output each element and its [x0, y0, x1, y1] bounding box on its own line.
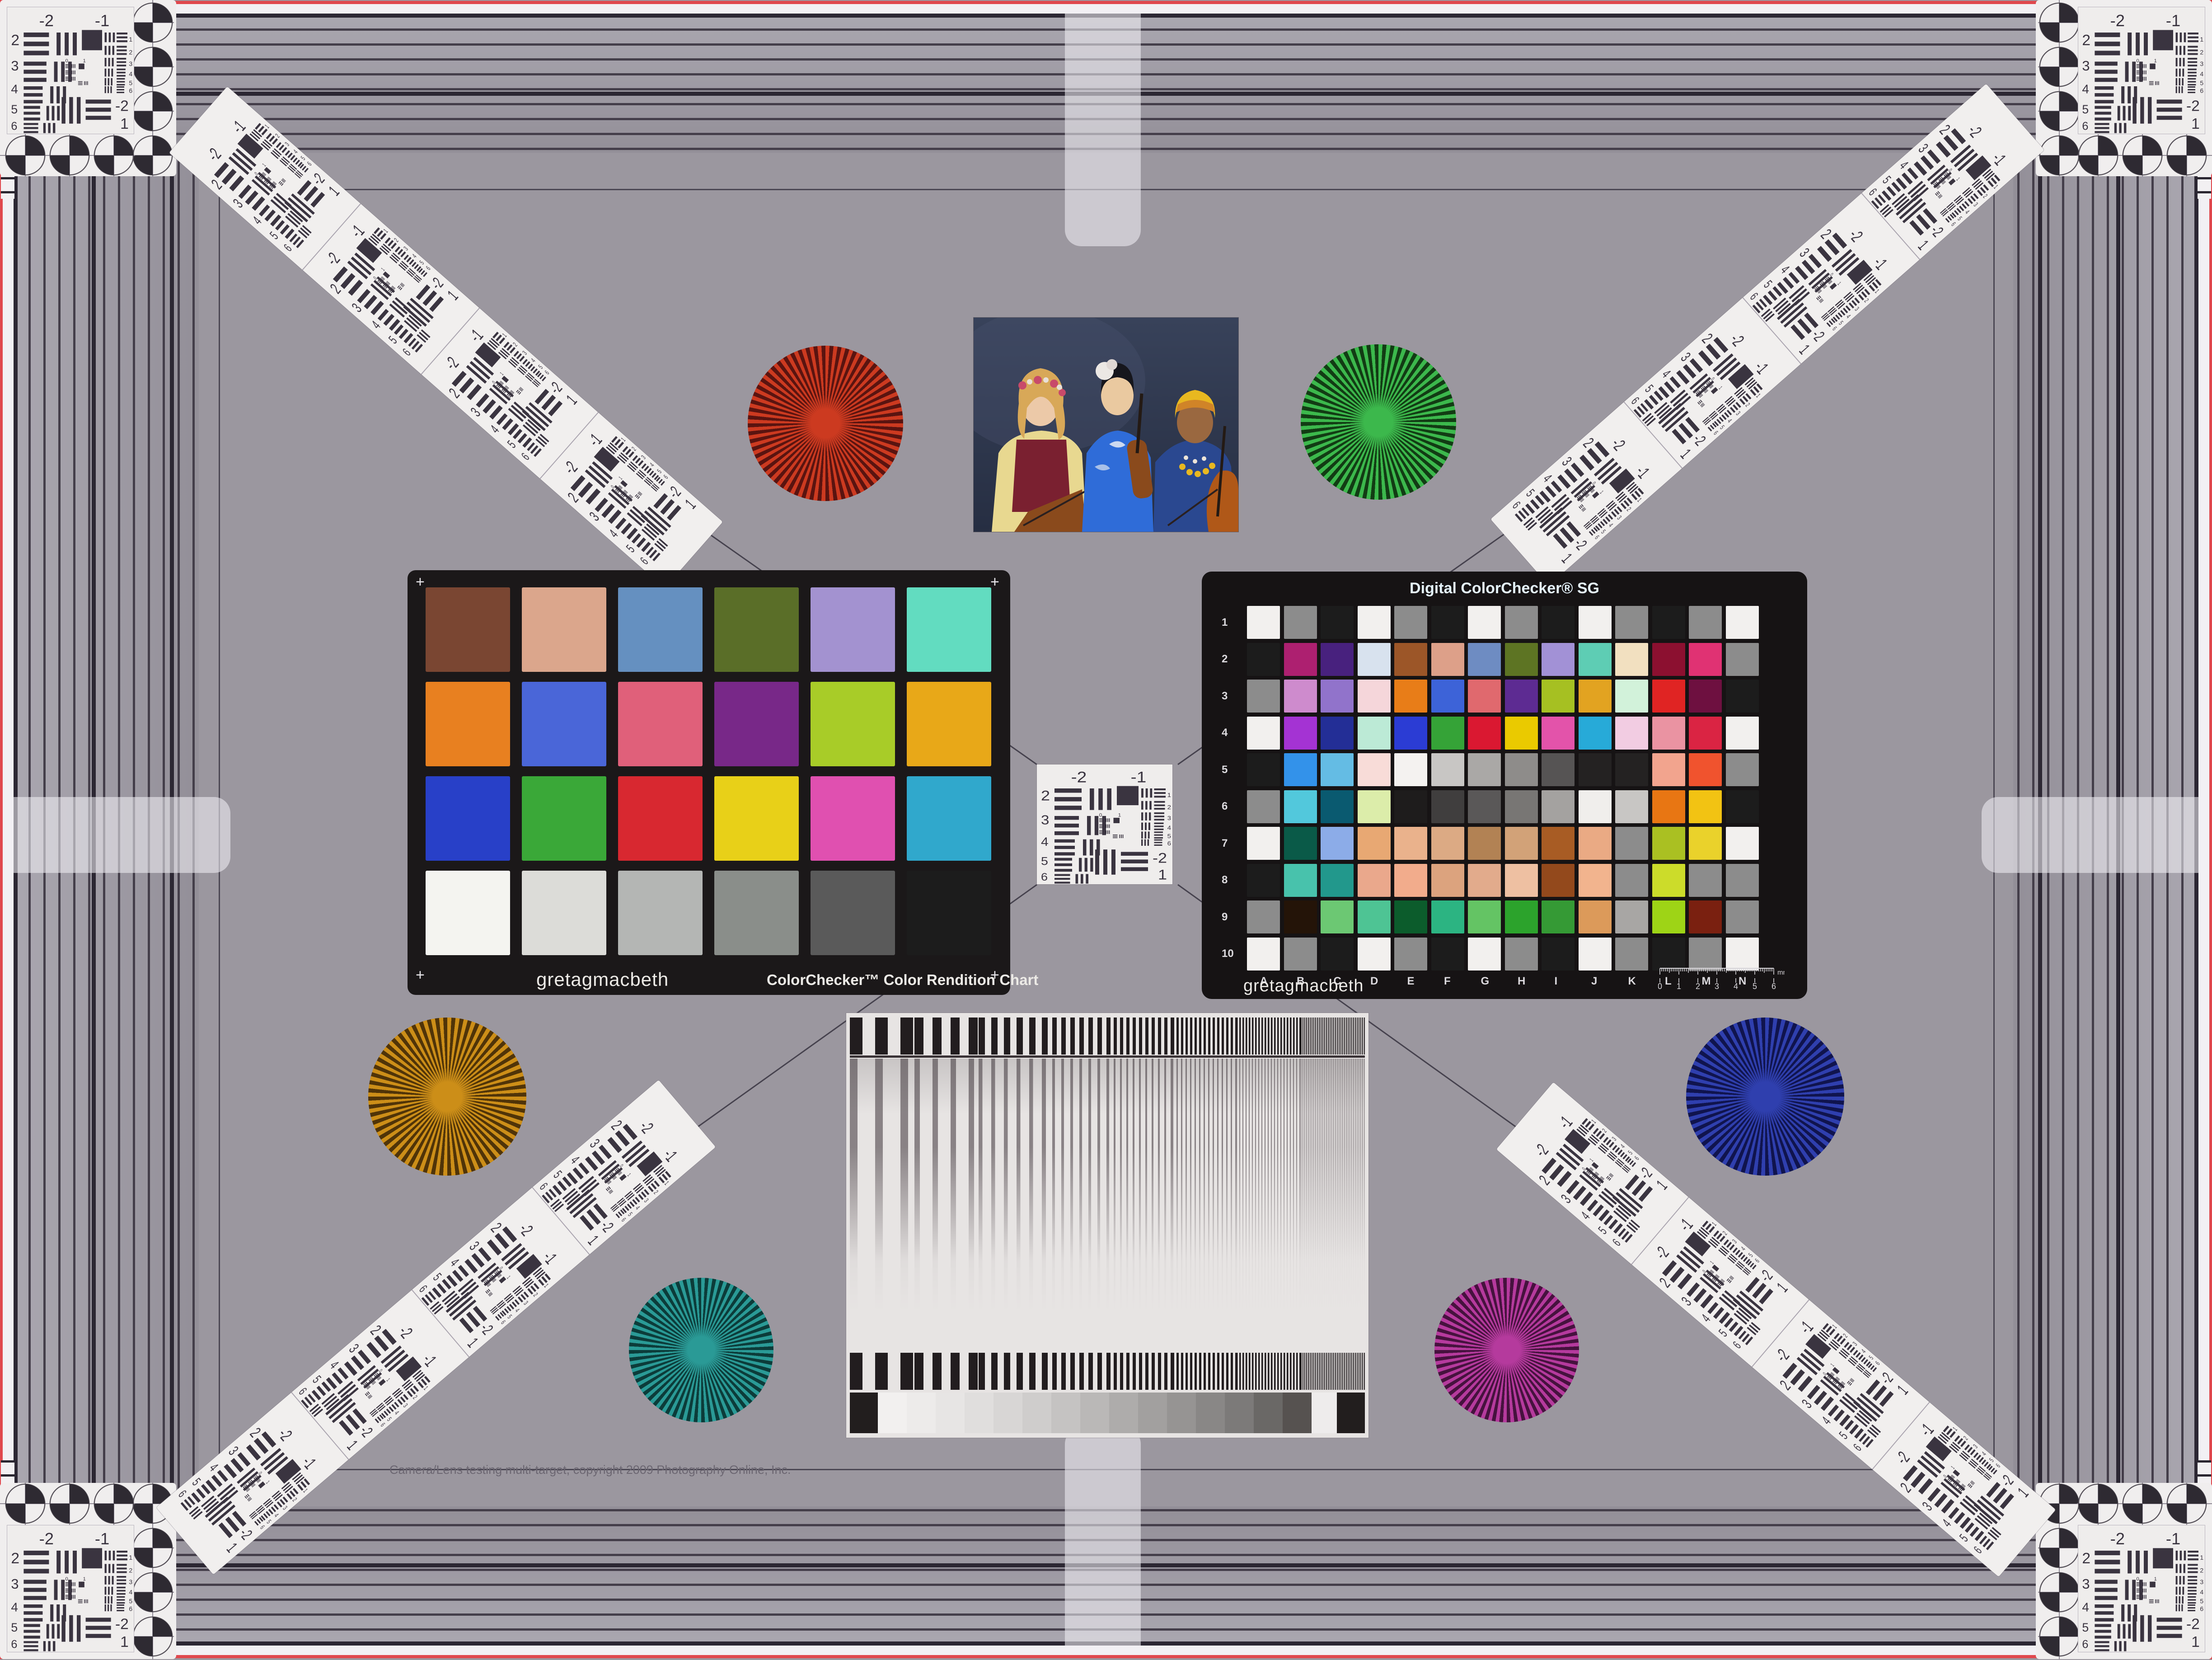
svg-text:5: 5	[2082, 1621, 2089, 1634]
svg-text:-2: -2	[1570, 535, 1590, 553]
sg-patch	[1431, 900, 1464, 933]
wedge-step	[1022, 1393, 1051, 1433]
sg-patch	[1579, 753, 1612, 786]
svg-text:2: 2	[129, 48, 132, 56]
svg-text:4: 4	[129, 70, 132, 77]
sg-patch	[1505, 864, 1538, 897]
sg-patch	[1358, 938, 1391, 971]
svg-text:4: 4	[634, 1204, 642, 1211]
sg-patch	[1431, 753, 1464, 786]
svg-text:3: 3	[642, 1196, 650, 1204]
sg-patch	[1394, 680, 1427, 713]
svg-text:2: 2	[412, 1393, 419, 1401]
svg-text:-2: -2	[427, 274, 447, 293]
svg-text:-2: -2	[2110, 11, 2125, 30]
sg-patch	[1579, 717, 1612, 750]
svg-text:4: 4	[393, 1409, 401, 1416]
siemens-star-teal	[629, 1278, 773, 1422]
svg-text:1: 1	[2191, 1634, 2200, 1651]
sg-row-label: 8	[1222, 874, 1228, 886]
svg-text:-2: -2	[1071, 769, 1087, 786]
sg-patch	[1615, 606, 1648, 639]
sg-patch	[1394, 606, 1427, 639]
colorchecker-sg-card: Digital ColorChecker® SG 12345678910ABCD…	[1202, 572, 1807, 999]
sg-patch	[1431, 680, 1464, 713]
svg-text:1: 1	[1951, 1425, 1959, 1432]
sg-patch	[1284, 900, 1317, 933]
svg-text:-1: -1	[2166, 1529, 2180, 1548]
quadrant-circle-icon	[2165, 1482, 2208, 1525]
svg-text:5: 5	[623, 542, 637, 555]
svg-text:-2: -2	[394, 1322, 416, 1342]
sg-patch	[1505, 606, 1538, 639]
svg-text:1: 1	[1558, 550, 1575, 567]
svg-text:3: 3	[639, 453, 647, 460]
wedge-step	[1225, 1393, 1254, 1433]
svg-text:6: 6	[296, 1385, 309, 1397]
svg-text:1: 1	[499, 371, 505, 376]
sg-patch	[1247, 606, 1280, 639]
svg-text:-2: -2	[1845, 225, 1866, 246]
classic-patch	[426, 682, 510, 766]
svg-text:2: 2	[1721, 1229, 1729, 1237]
sg-patch	[1284, 717, 1317, 750]
classic-patch	[907, 871, 991, 955]
svg-text:-1: -1	[2166, 11, 2180, 30]
sg-patch	[1431, 827, 1464, 860]
sg-row-label: 9	[1222, 911, 1228, 924]
sg-patch	[1431, 864, 1464, 897]
svg-text:5: 5	[1753, 982, 1757, 991]
classic-patch	[714, 587, 799, 672]
sg-patch	[1468, 827, 1501, 860]
svg-text:3: 3	[586, 509, 603, 524]
svg-text:5: 5	[1957, 1532, 1971, 1545]
svg-text:1: 1	[619, 436, 627, 443]
sg-patch	[1652, 643, 1685, 676]
quadrant-circle-icon	[4, 134, 47, 177]
svg-text:5: 5	[189, 1475, 203, 1488]
sg-patch	[1652, 900, 1685, 933]
sg-patch	[1284, 938, 1317, 971]
sg-patch	[1689, 790, 1722, 823]
svg-text:6: 6	[305, 160, 313, 167]
svg-text:3: 3	[1167, 815, 1171, 821]
sg-patch	[1652, 790, 1685, 823]
quadrant-circle-icon	[2077, 134, 2119, 177]
svg-text:3: 3	[1734, 409, 1742, 417]
sg-patch	[1542, 864, 1575, 897]
sg-patch	[1579, 900, 1612, 933]
classic-title: ColorChecker™ Color Rendition Chart	[767, 971, 1038, 989]
svg-text:6: 6	[1593, 533, 1601, 540]
sg-patch	[1542, 717, 1575, 750]
corner-registration-block-bottom-right: -2-12345612345601-21	[2036, 1483, 2212, 1659]
svg-text:4: 4	[11, 1600, 18, 1614]
sg-patch	[1284, 643, 1317, 676]
svg-text:5: 5	[309, 1373, 323, 1386]
sg-patch	[1247, 864, 1280, 897]
svg-text:4: 4	[11, 82, 18, 96]
sg-patch	[1468, 643, 1501, 676]
colorchecker-classic-card: + + + + gretagmacbeth ColorChecker™ Colo…	[408, 570, 1010, 995]
svg-text:2: 2	[2082, 1550, 2090, 1567]
sg-patch	[1579, 606, 1612, 639]
sg-patch	[1358, 827, 1391, 860]
svg-text:5: 5	[1987, 1456, 1995, 1463]
corner-cross-icon: +	[990, 577, 999, 586]
svg-text:0: 0	[65, 58, 68, 64]
sg-column-label: F	[1444, 975, 1451, 988]
svg-text:1: 1	[1830, 1362, 1836, 1368]
wedge-step	[1167, 1393, 1196, 1433]
sg-patch	[1505, 643, 1538, 676]
svg-text:4: 4	[1726, 417, 1734, 424]
sg-patch	[1615, 753, 1648, 786]
wedge-step	[994, 1393, 1022, 1433]
svg-text:3: 3	[468, 404, 484, 419]
svg-text:3: 3	[1972, 201, 1980, 208]
quadrant-circle-icon	[2038, 1615, 2081, 1658]
svg-text:6: 6	[1831, 324, 1838, 332]
svg-text:5: 5	[626, 1210, 634, 1218]
svg-text:6: 6	[1748, 290, 1761, 302]
usaf-resolution-target-corner: -2-12345612345601-21	[7, 1525, 134, 1652]
svg-text:6: 6	[2200, 1605, 2203, 1612]
sg-patch	[1615, 900, 1648, 933]
sg-patch	[1358, 900, 1391, 933]
sg-patch	[1505, 790, 1538, 823]
svg-text:6: 6	[129, 87, 132, 94]
svg-text:-2: -2	[1689, 430, 1709, 449]
svg-text:2: 2	[1167, 804, 1171, 811]
svg-text:6: 6	[1610, 1236, 1623, 1249]
svg-text:6: 6	[1753, 1257, 1761, 1264]
svg-text:6: 6	[1994, 1462, 2002, 1469]
svg-text:4: 4	[1734, 982, 1738, 991]
sg-patch	[1468, 864, 1501, 897]
svg-text:4: 4	[1819, 1414, 1834, 1427]
svg-text:4: 4	[2082, 1600, 2089, 1614]
svg-text:3: 3	[1971, 1443, 1979, 1450]
svg-text:5: 5	[2082, 103, 2089, 116]
svg-text:1: 1	[626, 1172, 632, 1177]
svg-text:5: 5	[2200, 79, 2203, 86]
svg-text:-2: -2	[635, 1116, 657, 1137]
sg-patch	[1394, 753, 1427, 786]
svg-text:3: 3	[1041, 812, 1049, 827]
svg-text:1: 1	[1590, 1118, 1598, 1125]
svg-text:1: 1	[1992, 183, 2000, 190]
svg-text:-2: -2	[1153, 850, 1167, 866]
svg-text:2: 2	[652, 1188, 660, 1196]
sg-patch	[1726, 864, 1759, 897]
svg-text:6: 6	[662, 473, 670, 480]
quadrant-circle-icon	[2038, 1, 2081, 44]
sg-brand: gretagmacbeth	[1243, 976, 1364, 996]
sg-patch	[1468, 938, 1501, 971]
svg-text:1: 1	[120, 1634, 129, 1651]
sg-patch	[1431, 643, 1464, 676]
quadrant-circle-icon	[2121, 134, 2164, 177]
svg-text:4: 4	[648, 461, 656, 468]
svg-text:5: 5	[267, 229, 281, 242]
wedge-step	[1051, 1393, 1080, 1433]
svg-text:-2: -2	[515, 1219, 537, 1239]
svg-text:4: 4	[529, 356, 537, 364]
svg-text:5: 5	[11, 103, 18, 116]
svg-text:5: 5	[1747, 1251, 1754, 1258]
svg-text:1: 1	[1873, 287, 1881, 295]
sg-patch	[1394, 643, 1427, 676]
svg-text:3: 3	[281, 1504, 289, 1511]
svg-text:1: 1	[223, 1539, 240, 1556]
sg-patch	[1542, 680, 1575, 713]
svg-text:-2: -2	[39, 11, 54, 30]
svg-text:1: 1	[584, 1232, 602, 1248]
svg-text:-2: -2	[115, 98, 129, 115]
svg-text:-2: -2	[1726, 329, 1748, 350]
svg-text:6: 6	[1971, 1543, 1984, 1556]
svg-text:0: 0	[1658, 982, 1662, 991]
quadrant-circle-icon	[2038, 46, 2081, 88]
svg-text:4: 4	[369, 318, 383, 332]
svg-text:-2: -2	[1651, 1243, 1673, 1263]
svg-text:6: 6	[2200, 87, 2203, 94]
sg-patch	[1689, 717, 1722, 750]
svg-text:5: 5	[550, 1168, 564, 1181]
svg-text:5: 5	[1642, 382, 1656, 395]
svg-text:2: 2	[1696, 982, 1700, 991]
svg-text:1: 1	[1709, 1260, 1715, 1265]
sg-patch	[1579, 790, 1612, 823]
svg-text:3: 3	[1730, 1238, 1738, 1245]
sg-patch	[1468, 790, 1501, 823]
usaf-resolution-target-center: -2-12345612345601-21	[1037, 764, 1172, 884]
sg-patch	[1431, 938, 1464, 971]
sg-row-label: 1	[1222, 616, 1228, 629]
wedge-step	[907, 1393, 936, 1433]
svg-text:-2: -2	[441, 353, 463, 374]
quadrant-circle-icon	[131, 1, 174, 44]
svg-text:2: 2	[1982, 192, 1989, 199]
svg-text:5: 5	[1761, 278, 1775, 291]
svg-text:1: 1	[2200, 36, 2203, 43]
svg-text:3: 3	[1853, 305, 1861, 312]
corner-registration-block-top-left: -2-12345612345601-21	[0, 0, 176, 176]
svg-text:3: 3	[402, 244, 409, 252]
svg-text:6: 6	[637, 554, 651, 567]
svg-text:-2: -2	[1927, 221, 1947, 240]
svg-text:-2: -2	[546, 378, 566, 397]
sg-patch	[1284, 606, 1317, 639]
registration-tab-right	[1982, 797, 2198, 873]
svg-text:1: 1	[262, 162, 267, 168]
svg-text:4: 4	[410, 252, 418, 259]
frequency-sweep-chart	[846, 1013, 1368, 1438]
quadrant-circle-icon	[4, 1482, 47, 1525]
wedge-step	[1109, 1393, 1138, 1433]
svg-text:1: 1	[1636, 496, 1644, 503]
usaf-resolution-target-corner: -2-12345612345601-21	[7, 7, 134, 134]
quadrant-circle-icon	[2038, 134, 2081, 177]
svg-text:-1: -1	[1631, 461, 1653, 482]
svg-text:5: 5	[537, 363, 544, 370]
svg-text:5: 5	[1716, 1327, 1730, 1340]
quadrant-circle-icon	[131, 1527, 174, 1569]
classic-patch	[714, 776, 799, 861]
sg-column-label: E	[1407, 975, 1415, 988]
quadrant-circle-icon	[2038, 1527, 2081, 1569]
sg-patch	[1615, 790, 1648, 823]
svg-text:1: 1	[1118, 813, 1121, 818]
quadrant-circle-icon	[131, 1571, 174, 1613]
svg-text:6: 6	[1851, 1441, 1864, 1454]
svg-text:3: 3	[1616, 514, 1623, 521]
svg-text:-2: -2	[204, 144, 225, 165]
sg-patch	[1284, 827, 1317, 860]
classic-patch	[522, 682, 606, 766]
svg-text:3: 3	[129, 60, 132, 67]
quadrant-circle-icon	[131, 90, 174, 132]
quadrant-circle-icon	[2121, 1482, 2164, 1525]
svg-text:4: 4	[606, 527, 621, 540]
svg-text:-2: -2	[1772, 1345, 1794, 1365]
sg-patch	[1579, 864, 1612, 897]
wedge-step	[1312, 1393, 1337, 1433]
svg-text:1: 1	[129, 1554, 132, 1561]
sg-patch	[1726, 717, 1759, 750]
svg-text:-1: -1	[1750, 357, 1772, 378]
svg-text:5: 5	[385, 1415, 393, 1422]
svg-text:1: 1	[1950, 1465, 1956, 1470]
svg-text:1: 1	[1158, 867, 1167, 883]
svg-text:mm: mm	[1777, 969, 1785, 976]
sg-patch	[1652, 753, 1685, 786]
svg-text:-2: -2	[308, 169, 328, 188]
sg-title: Digital ColorChecker® SG	[1410, 580, 1599, 597]
svg-text:-2: -2	[1808, 326, 1828, 345]
quadrant-circle-icon	[2077, 1482, 2119, 1525]
sg-patch	[1689, 606, 1722, 639]
sg-patch	[1726, 900, 1759, 933]
svg-text:1: 1	[1831, 1322, 1838, 1330]
sg-patch	[1689, 827, 1722, 860]
svg-text:0: 0	[65, 1576, 68, 1582]
quadrant-circle-icon	[131, 1615, 174, 1658]
wedge-step	[965, 1393, 994, 1433]
svg-text:-2: -2	[1636, 1164, 1656, 1183]
svg-text:2: 2	[291, 1496, 299, 1503]
sg-column-label: G	[1481, 975, 1490, 988]
svg-text:-2: -2	[323, 249, 344, 269]
svg-text:2: 2	[511, 341, 519, 348]
sg-row-label: 2	[1222, 653, 1228, 666]
sg-column-label: K	[1628, 975, 1636, 988]
svg-text:-1: -1	[659, 1145, 681, 1165]
sg-patch	[1358, 790, 1391, 823]
svg-text:6: 6	[11, 1638, 17, 1651]
svg-text:3: 3	[2082, 1576, 2090, 1592]
svg-text:3: 3	[1715, 982, 1719, 991]
svg-text:2: 2	[532, 1291, 539, 1298]
svg-text:3: 3	[349, 300, 365, 315]
sg-patch	[1468, 680, 1501, 713]
sg-patch	[1431, 790, 1464, 823]
svg-text:5: 5	[1879, 174, 1893, 187]
svg-text:1: 1	[129, 36, 132, 43]
svg-text:4: 4	[2200, 1588, 2203, 1595]
svg-text:-1: -1	[95, 1529, 109, 1548]
sg-patch	[1579, 680, 1612, 713]
svg-text:-2: -2	[2186, 1616, 2200, 1633]
svg-text:1: 1	[1914, 237, 1932, 253]
svg-text:-1: -1	[1869, 253, 1891, 273]
wedge-step	[878, 1393, 907, 1433]
sg-patch	[1505, 938, 1538, 971]
svg-text:3: 3	[2082, 58, 2090, 74]
sg-patch	[1247, 900, 1280, 933]
sg-patch	[1358, 864, 1391, 897]
svg-text:6: 6	[176, 1487, 189, 1500]
svg-text:2: 2	[273, 132, 281, 139]
classic-patch	[811, 776, 895, 861]
sg-patch	[1615, 717, 1648, 750]
svg-text:1: 1	[2191, 116, 2200, 132]
classic-patch	[714, 871, 799, 955]
sg-patch	[1468, 606, 1501, 639]
svg-text:6: 6	[1874, 1359, 1881, 1366]
svg-text:6: 6	[424, 264, 432, 272]
sg-patch	[1284, 753, 1317, 786]
svg-text:4: 4	[250, 214, 264, 227]
wedge-step	[850, 1393, 878, 1433]
sg-patch	[1247, 717, 1280, 750]
svg-text:2: 2	[2200, 1566, 2203, 1574]
classic-patch	[522, 776, 606, 861]
sg-patch	[1394, 864, 1427, 897]
svg-text:1: 1	[2200, 1554, 2203, 1561]
sg-row-label: 3	[1222, 690, 1228, 703]
usaf-resolution-target-corner: -2-12345612345601-21	[2078, 1525, 2205, 1652]
corner-cross-icon: +	[416, 971, 425, 980]
quadrant-circle-icon	[2038, 1571, 2081, 1613]
svg-text:5: 5	[265, 1518, 273, 1525]
wedge-step	[936, 1393, 965, 1433]
sg-patch	[1394, 790, 1427, 823]
corner-registration-block-top-right: -2-12345612345601-21	[2036, 0, 2212, 176]
sg-patch	[1394, 938, 1427, 971]
sg-patch	[1652, 864, 1685, 897]
quadrant-circle-icon	[48, 134, 91, 177]
svg-text:6: 6	[281, 241, 295, 254]
svg-text:-2: -2	[1892, 1448, 1914, 1468]
svg-text:1: 1	[385, 1377, 391, 1383]
classic-patch	[811, 587, 895, 672]
svg-text:0: 0	[2136, 1576, 2139, 1582]
svg-text:-2: -2	[597, 1217, 617, 1236]
sg-patch	[1542, 753, 1575, 786]
svg-text:1: 1	[265, 1480, 271, 1485]
svg-text:6: 6	[400, 346, 413, 358]
sg-patch	[1652, 606, 1685, 639]
svg-text:1: 1	[1754, 392, 1762, 399]
svg-text:1: 1	[83, 58, 86, 64]
classic-patch	[618, 871, 703, 955]
sg-column-label: J	[1591, 975, 1597, 988]
svg-text:1: 1	[543, 1282, 550, 1289]
svg-text:6: 6	[379, 1421, 387, 1428]
